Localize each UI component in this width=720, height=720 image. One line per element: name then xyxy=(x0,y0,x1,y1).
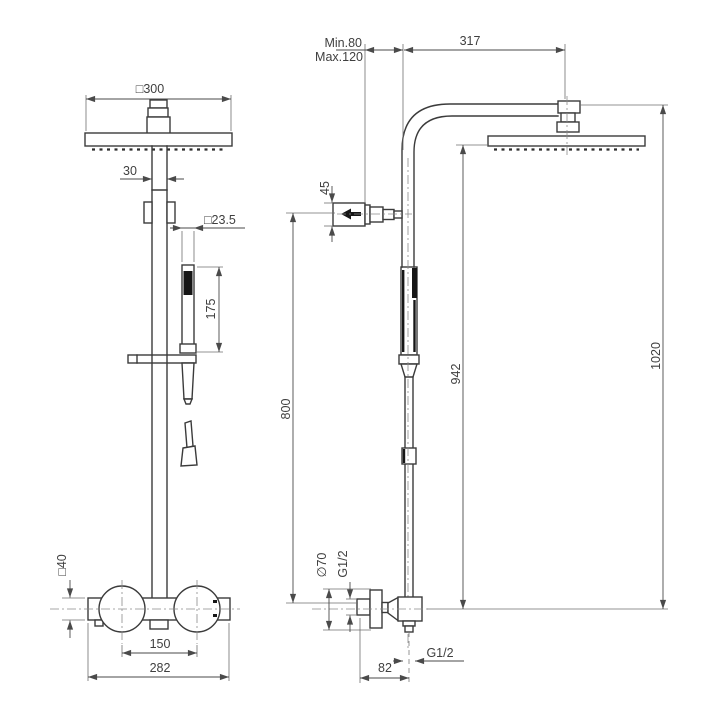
head-connector xyxy=(147,100,170,135)
dim-label-hand-shower-width: □23.5 xyxy=(204,213,236,227)
dim-label-handle-centers: 150 xyxy=(150,637,171,651)
dim-label-outlet-thread: G1/2 xyxy=(426,646,453,660)
dim-label-inlet-thread: G1/2 xyxy=(336,550,350,577)
dim-label-pipe-width: 30 xyxy=(123,164,137,178)
head-plate-side xyxy=(488,136,645,146)
dim-label-head-width: □300 xyxy=(136,82,164,96)
hand-shower-grip xyxy=(182,363,194,404)
slide-shelf xyxy=(128,355,196,363)
head-plate xyxy=(85,133,232,146)
hand-shower-side xyxy=(401,267,417,355)
hand-shower xyxy=(180,265,196,353)
riser-pipe xyxy=(152,146,167,598)
bracket-tab-left xyxy=(144,202,152,223)
dim-label-wall-distance-min: Min.80 xyxy=(324,36,362,50)
hand-shower-spray-face xyxy=(184,271,193,295)
dim-label-escutcheon-diameter: ∅70 xyxy=(315,553,329,578)
arm-end-cap xyxy=(558,101,580,113)
dim-label-wall-distance-max: Max.120 xyxy=(315,50,363,64)
valve-outlet-nut xyxy=(403,621,415,626)
technical-drawing-page: □300 30 □23.5 175 □40 150 282 xyxy=(0,0,720,720)
side-view xyxy=(312,96,645,684)
dim-label-valve-body-height: □40 xyxy=(55,554,69,576)
front-view-dimensions: □300 30 □23.5 175 □40 150 282 xyxy=(55,82,245,681)
dim-label-overall-height: 1020 xyxy=(649,342,663,370)
dim-label-head-to-valve: 942 xyxy=(449,364,463,385)
thermostatic-valve xyxy=(50,580,240,644)
shower-column-technical-drawing: □300 30 □23.5 175 □40 150 282 xyxy=(0,0,720,720)
dim-label-valve-width: 282 xyxy=(150,661,171,675)
dim-label-arm-projection: 317 xyxy=(460,34,481,48)
rail-taper xyxy=(401,364,417,377)
hand-shower-holder xyxy=(180,344,196,353)
rail-clamp xyxy=(399,355,419,364)
valve-knob-side xyxy=(357,599,370,615)
wall-bracket-side xyxy=(333,203,412,226)
hose-connector xyxy=(181,421,197,466)
ball-joint xyxy=(557,113,579,132)
dim-label-bracket-to-valve: 800 xyxy=(279,399,293,420)
front-view xyxy=(50,100,240,644)
hose-holder-side xyxy=(402,448,416,464)
dim-label-bracket-height: 45 xyxy=(318,181,332,195)
shower-arm xyxy=(402,101,580,267)
bracket-tab-right xyxy=(167,202,175,223)
lower-pipe-side xyxy=(405,377,413,597)
valve-side xyxy=(312,590,430,684)
dim-label-valve-projection: 82 xyxy=(378,661,392,675)
dim-label-hand-shower-length: 175 xyxy=(204,299,218,320)
side-view-dimensions: Min.80 Max.120 317 1020 942 800 45 ∅70 xyxy=(279,34,668,683)
valve-outlet xyxy=(150,620,168,629)
